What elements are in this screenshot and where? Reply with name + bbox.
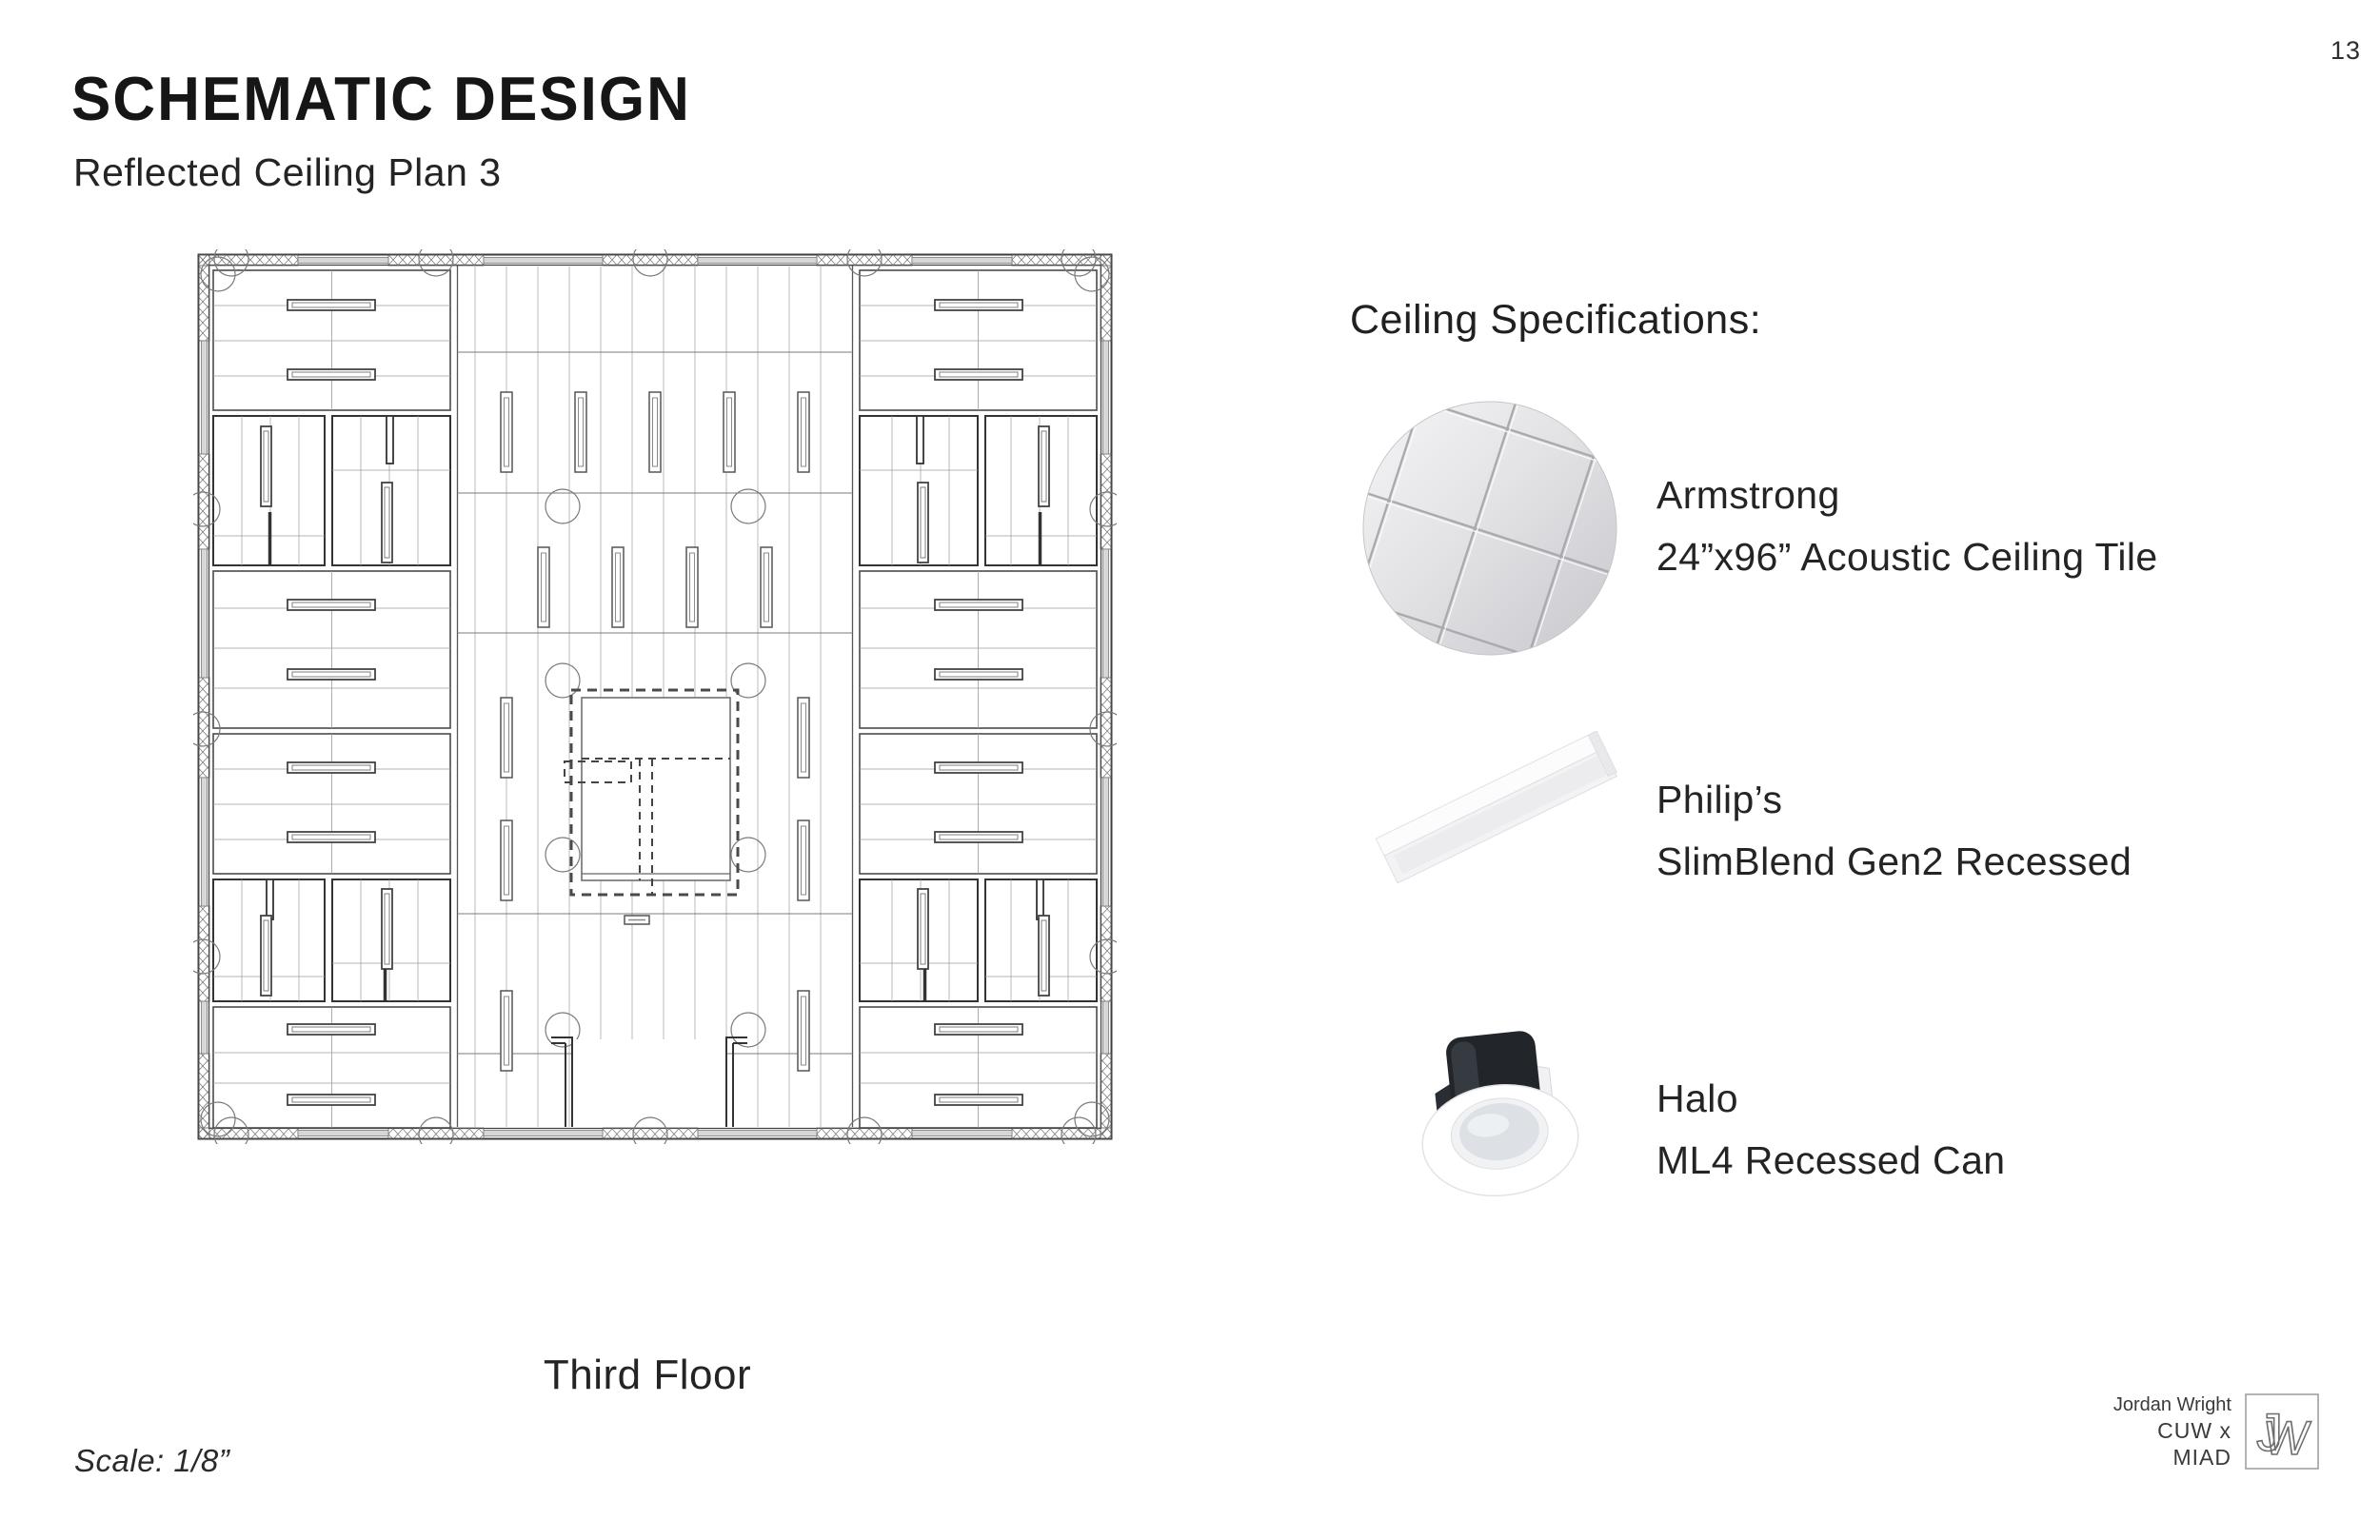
credit-program: CUW x MIAD	[2106, 1417, 2231, 1471]
ceiling-plan-svg	[193, 249, 1117, 1144]
plan-caption: Third Floor	[533, 1352, 762, 1399]
jw-logo: J W	[2245, 1393, 2319, 1470]
spec-item-halo: Halo ML4 Recessed Can	[1656, 1068, 2005, 1192]
presentation-slide: { "page": { "number": "13" }, "header": …	[0, 0, 2380, 1540]
central-corridor	[458, 266, 853, 1127]
halo-can-image	[1409, 1028, 1590, 1201]
armstrong-tile-image	[1361, 400, 1618, 657]
slimblend-panel-image	[1359, 725, 1645, 897]
entry-vestibule	[551, 1037, 747, 1127]
spec-product: SlimBlend Gen2 Recessed	[1656, 831, 2132, 893]
office-wing-mirrored	[860, 270, 1097, 1128]
credit-text: Jordan Wright CUW x MIAD	[2106, 1392, 2231, 1471]
slide-title: SCHEMATIC DESIGN	[71, 65, 691, 135]
logo-letter-w: W	[2260, 1412, 2313, 1465]
spec-item-philips: Philip’s SlimBlend Gen2 Recessed	[1656, 769, 2132, 893]
spec-item-armstrong: Armstrong 24”x96” Acoustic Ceiling Tile	[1656, 464, 2158, 588]
spec-product: ML4 Recessed Can	[1656, 1130, 2005, 1192]
ceiling-specifications-panel: Ceiling Specifications:	[1350, 297, 2340, 1249]
reflected-ceiling-plan-drawing	[193, 249, 1117, 1144]
credit-name: Jordan Wright	[2106, 1392, 2231, 1417]
scale-note: Scale: 1/8”	[74, 1443, 229, 1479]
spec-brand: Halo	[1656, 1068, 2005, 1130]
spec-brand: Philip’s	[1656, 769, 2132, 831]
credit-block: Jordan Wright CUW x MIAD J W	[2106, 1392, 2325, 1471]
office-wing	[213, 270, 450, 1128]
specs-heading: Ceiling Specifications:	[1350, 297, 1761, 344]
perimeter-walls	[199, 255, 1112, 1139]
slide-subtitle: Reflected Ceiling Plan 3	[73, 150, 502, 195]
page-number: 13	[2330, 36, 2361, 66]
spec-product: 24”x96” Acoustic Ceiling Tile	[1656, 526, 2158, 588]
small-ceiling-light	[625, 916, 649, 924]
spec-brand: Armstrong	[1656, 464, 2158, 526]
shaft-soffit	[565, 690, 738, 895]
